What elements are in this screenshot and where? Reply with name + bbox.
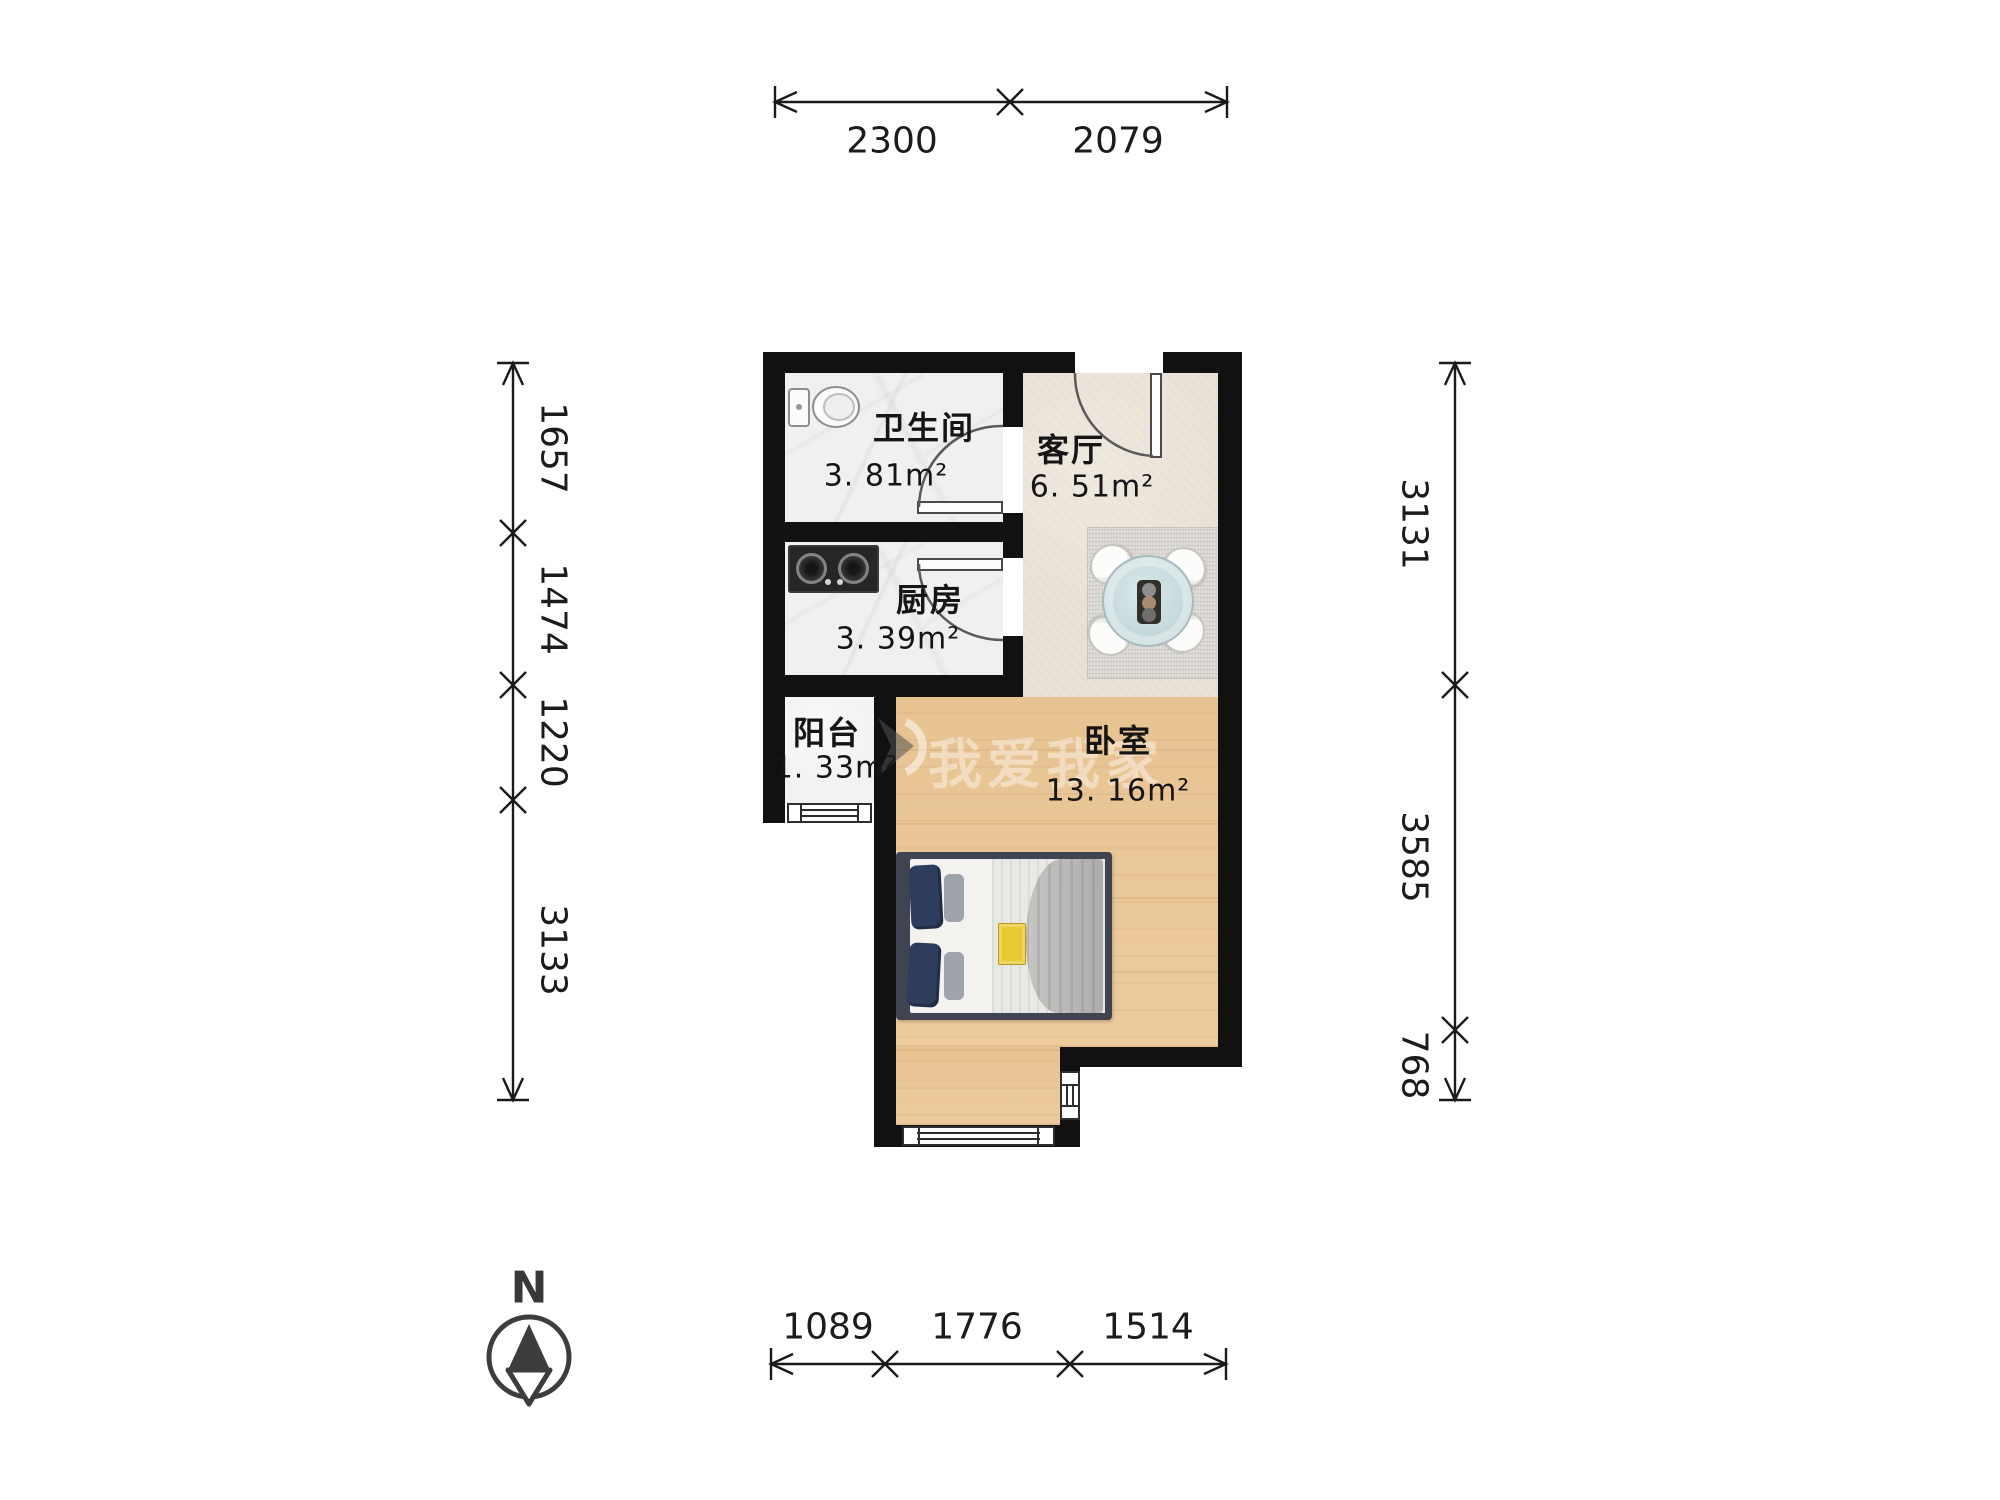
- bed-pillow-icon: [944, 874, 964, 922]
- window-cap: [1062, 1105, 1078, 1107]
- dimension-line-left: [497, 363, 529, 1100]
- dim-top-1: 2300: [846, 121, 938, 162]
- tray-dish-icon: [1142, 608, 1156, 622]
- dim-top-2: 2079: [1072, 121, 1164, 162]
- bedroom-side-window-icon: [1060, 1071, 1080, 1120]
- book-icon: [998, 923, 1026, 965]
- wall-right: [1218, 352, 1242, 1067]
- dim-left-3: 1220: [533, 696, 574, 788]
- bedroom-label: 卧室: [1084, 716, 1152, 762]
- wall-inner-vertical-middle: [1003, 513, 1023, 558]
- compass-icon: [489, 1317, 569, 1404]
- window-cap: [1037, 1128, 1039, 1144]
- bathroom-label: 卫生间: [873, 403, 975, 449]
- dim-right-2: 3585: [1394, 811, 1435, 903]
- wall-bedroom-left: [874, 675, 896, 1147]
- window-cap: [800, 805, 802, 821]
- stove-icon: [788, 545, 879, 593]
- dimension-line-bottom: [771, 1348, 1226, 1380]
- window-bar: [917, 1132, 1040, 1134]
- living-room-label: 客厅: [1037, 425, 1105, 471]
- dim-left-2: 1474: [533, 563, 574, 655]
- kitchen-door-leaf-icon: [917, 558, 1003, 571]
- dim-left-1: 1657: [533, 402, 574, 494]
- dim-left-4: 3133: [533, 904, 574, 996]
- window-bar: [917, 1138, 1040, 1140]
- dim-bottom-2: 1776: [931, 1307, 1023, 1348]
- bedroom-area: 13. 16m²: [1046, 774, 1191, 809]
- wall-bathroom-kitchen-divider: [763, 522, 1023, 542]
- window-bar: [802, 809, 857, 811]
- balcony-area: 1. 33m²: [774, 751, 899, 786]
- kitchen-label: 厨房: [896, 575, 964, 621]
- dim-right-1: 3131: [1394, 478, 1435, 570]
- window-bar: [1066, 1086, 1068, 1105]
- stove-knob-icon: [837, 579, 843, 585]
- window-bar: [802, 815, 857, 817]
- bed-icon: [896, 852, 1112, 1020]
- window-cap: [918, 1128, 920, 1144]
- dim-bottom-1: 1089: [782, 1307, 874, 1348]
- bed-blanket-icon: [1026, 859, 1103, 1013]
- stove-knob-icon: [825, 579, 831, 585]
- bathroom-area: 3. 81m²: [824, 459, 949, 494]
- stove-burner-icon: [838, 553, 869, 584]
- dim-right-3: 768: [1394, 1031, 1435, 1100]
- bed-pillow-icon: [908, 864, 943, 930]
- compass-north-label: N: [511, 1263, 548, 1314]
- kitchen-area: 3. 39m²: [836, 622, 961, 657]
- floorplan-canvas: 我爱我家 卫生间 3. 81m² 厨房 3. 39m² 客厅 6. 51m² 阳…: [0, 0, 2000, 1500]
- entry-door-leaf-icon: [1150, 373, 1162, 458]
- window-cap: [857, 805, 859, 821]
- dimension-line-top: [775, 86, 1227, 118]
- bed-pillow-icon: [944, 952, 964, 1000]
- window-bar: [1072, 1086, 1074, 1105]
- dimension-line-right: [1439, 363, 1471, 1100]
- wall-inner-vertical-lower: [1003, 636, 1023, 675]
- wall-step-horizontal: [1060, 1047, 1242, 1067]
- bedroom-floor-extension: [896, 1047, 1060, 1125]
- table-tray-icon: [1137, 580, 1161, 624]
- bed-pillow-icon: [906, 942, 941, 1008]
- balcony-window-icon: [787, 803, 872, 823]
- stove-burner-icon: [796, 553, 827, 584]
- dim-bottom-3: 1514: [1102, 1307, 1194, 1348]
- bathroom-door-leaf-icon: [917, 501, 1003, 514]
- tray-dish-icon: [1142, 583, 1156, 597]
- living-room-area: 6. 51m²: [1030, 470, 1155, 505]
- window-cap: [1062, 1084, 1078, 1086]
- wall-inner-vertical-upper: [1003, 373, 1023, 427]
- balcony-label: 阳台: [793, 708, 861, 754]
- wall-top-left: [763, 352, 1075, 373]
- bedroom-bottom-window-icon: [902, 1126, 1055, 1146]
